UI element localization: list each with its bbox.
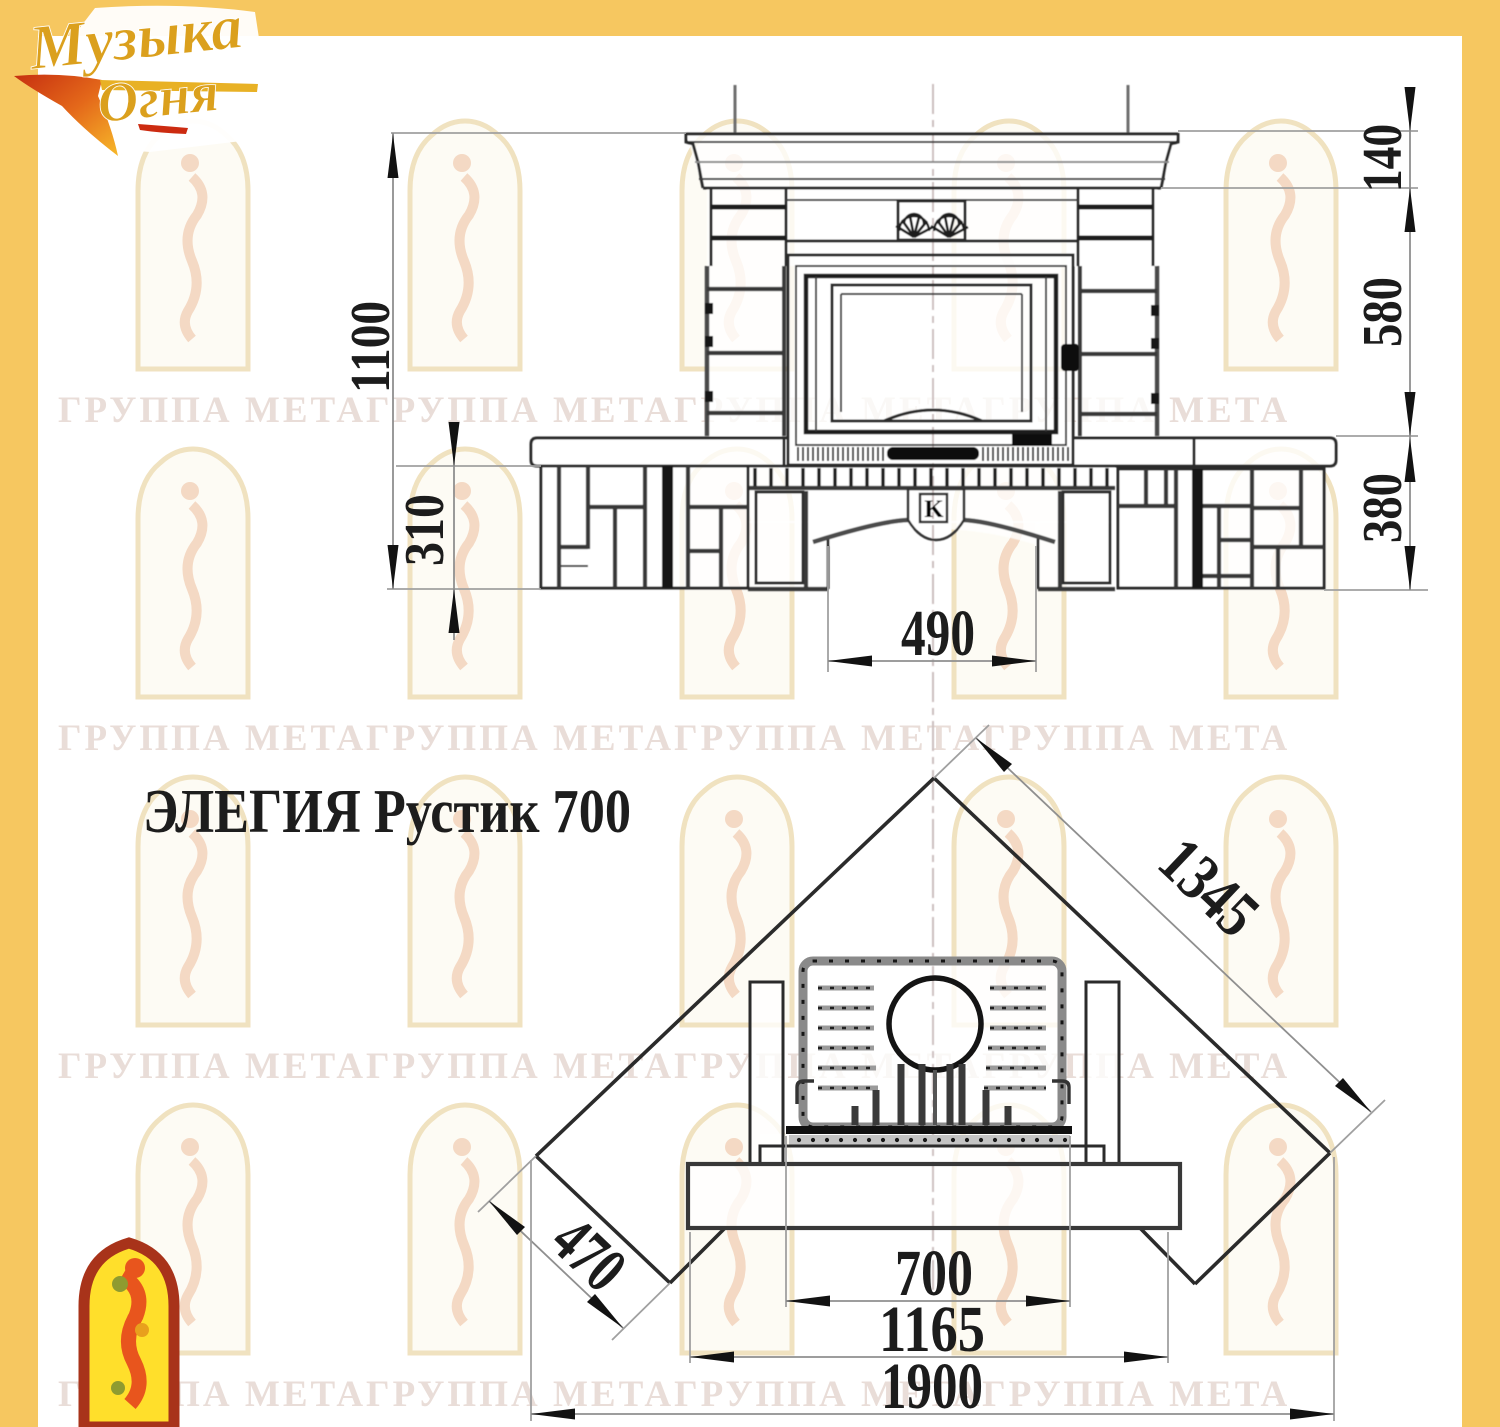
svg-text:Огня: Огня [95, 61, 222, 135]
svg-text:ЭЛЕГИЯ Рустик 700: ЭЛЕГИЯ Рустик 700 [143, 778, 631, 846]
svg-text:380: 380 [1352, 473, 1414, 543]
svg-text:310: 310 [394, 494, 456, 566]
svg-text:1100: 1100 [340, 301, 402, 393]
svg-text:K: K [924, 496, 944, 523]
svg-text:580: 580 [1352, 277, 1414, 347]
svg-text:1900: 1900 [881, 1350, 983, 1423]
svg-text:490: 490 [901, 597, 975, 670]
svg-text:470: 470 [538, 1203, 640, 1306]
svg-text:140: 140 [1352, 124, 1414, 192]
svg-text:ГРУППА МЕТАГРУППА МЕТАГРУППА М: ГРУППА МЕТАГРУППА МЕТАГРУППА МЕТАГРУППА … [58, 1374, 1290, 1415]
svg-text:ГРУППА МЕТАГРУППА МЕТАГРУППА М: ГРУППА МЕТАГРУППА МЕТАГРУППА МЕТАГРУППА … [58, 718, 1290, 759]
